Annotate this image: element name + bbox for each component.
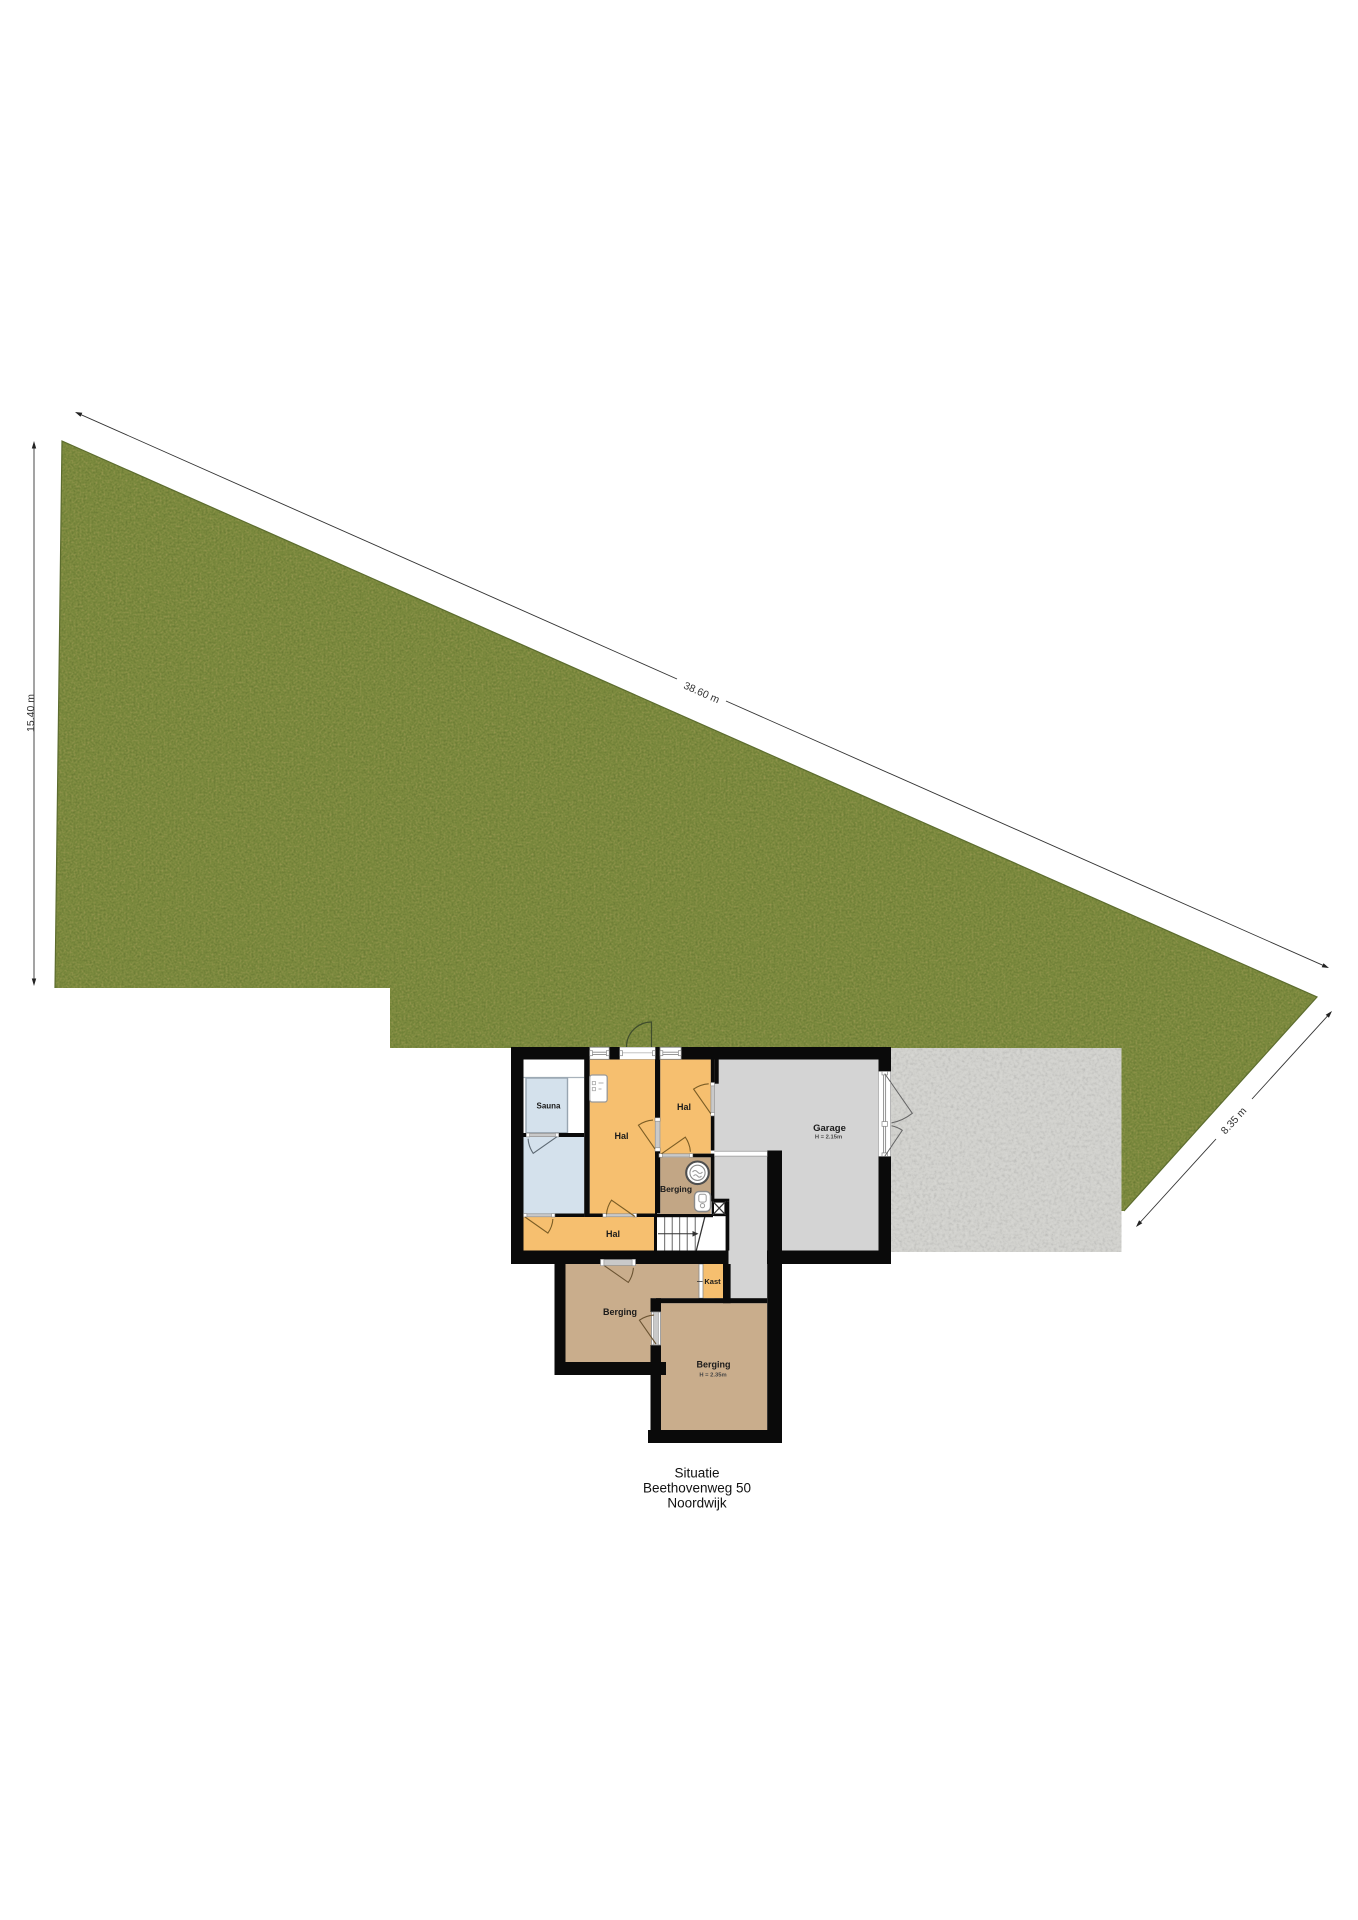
svg-text:H = 2.35m: H = 2.35m [699,1373,726,1379]
svg-text:Hal: Hal [606,1229,620,1239]
svg-text:Berging: Berging [603,1307,637,1317]
svg-text:8.35 m: 8.35 m [1219,1105,1250,1137]
svg-text:Kast: Kast [704,1277,721,1286]
svg-text:15.40 m: 15.40 m [25,694,37,732]
svg-text:Situatie: Situatie [674,1466,719,1481]
svg-text:Garage: Garage [813,1123,846,1134]
svg-text:Hal: Hal [614,1131,628,1141]
svg-text:Beethovenweg 50: Beethovenweg 50 [643,1481,751,1496]
svg-text:Hal: Hal [677,1102,691,1112]
svg-text:Berging: Berging [660,1184,692,1194]
svg-text:38.60 m: 38.60 m [682,680,722,706]
svg-text:Noordwijk: Noordwijk [667,1496,727,1511]
svg-text:Berging: Berging [696,1360,730,1370]
svg-text:Sauna: Sauna [536,1102,561,1111]
svg-text:H = 2.15m: H = 2.15m [815,1135,842,1141]
